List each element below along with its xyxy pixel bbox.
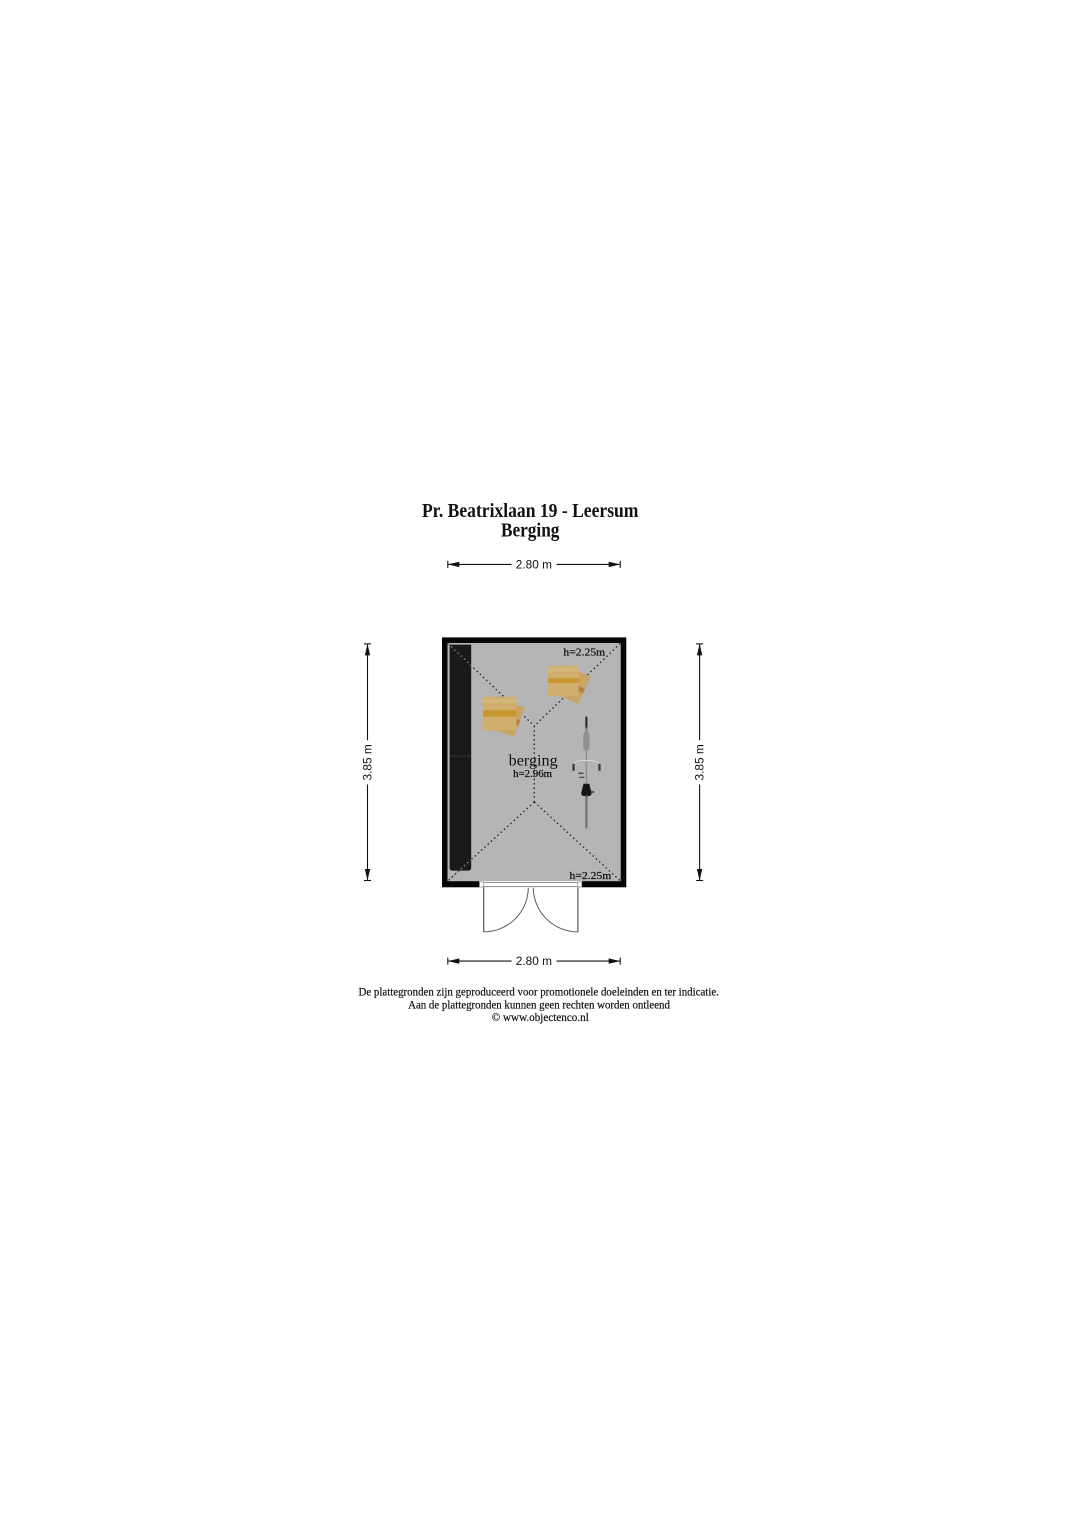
svg-text:h=2.25m: h=2.25m [563, 647, 605, 659]
svg-text:h=2.96m: h=2.96m [513, 769, 553, 780]
svg-text:3.85 m: 3.85 m [695, 744, 707, 780]
svg-text:© www.objectenco.nl: © www.objectenco.nl [492, 1010, 590, 1024]
svg-text:3.85 m: 3.85 m [362, 744, 374, 780]
svg-text:2.80 m: 2.80 m [516, 956, 552, 968]
svg-text:De plattegronden zijn geproduc: De plattegronden zijn geproduceerd voor … [359, 984, 719, 998]
svg-text:Berging: Berging [501, 520, 560, 542]
svg-text:h=2.25m: h=2.25m [570, 870, 612, 882]
svg-text:2.80 m: 2.80 m [516, 559, 552, 571]
svg-text:berging: berging [509, 753, 558, 770]
